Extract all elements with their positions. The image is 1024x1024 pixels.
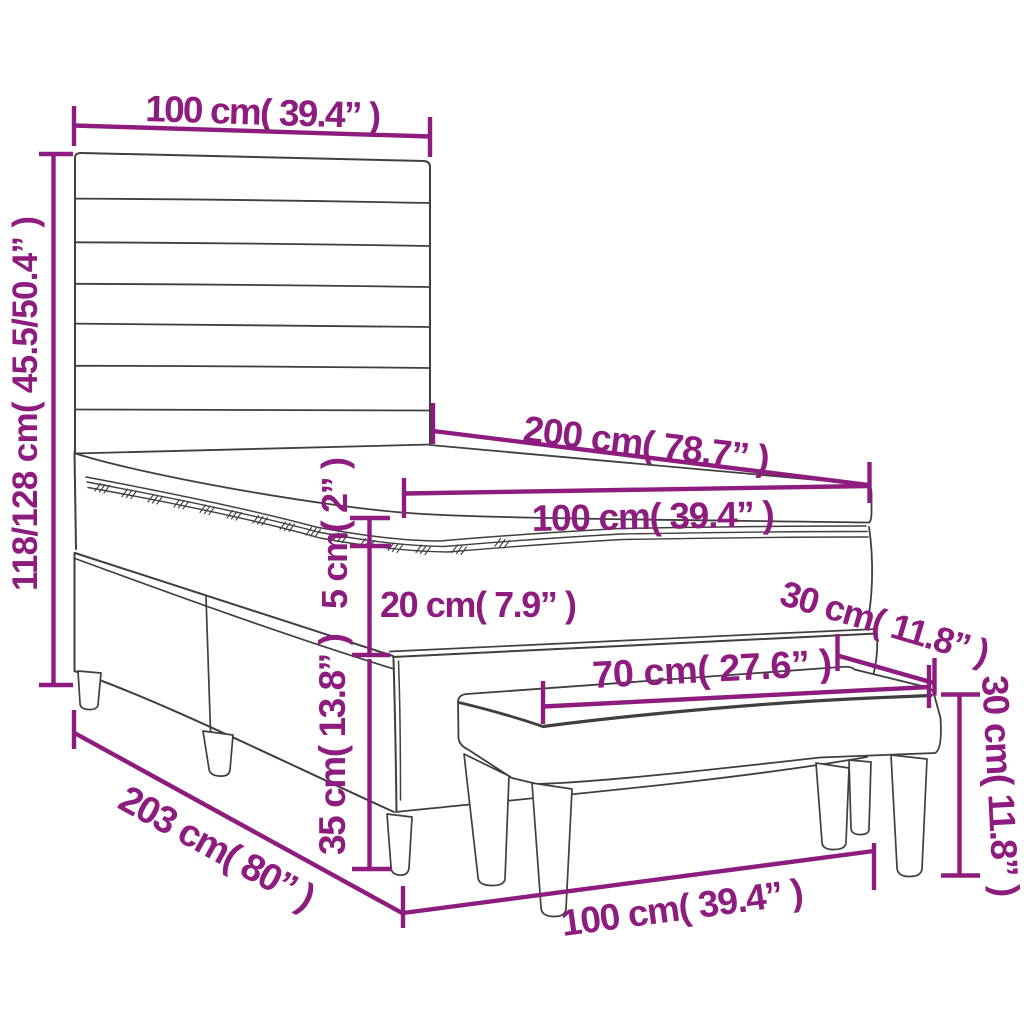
- svg-text:35 cm( 13.8” ): 35 cm( 13.8” ): [312, 633, 353, 855]
- svg-text:20 cm( 7.9” ): 20 cm( 7.9” ): [380, 584, 577, 625]
- svg-text:118/128 cm( 45.5/50.4” ): 118/128 cm( 45.5/50.4” ): [6, 216, 45, 591]
- svg-text:5 cm( 2” ): 5 cm( 2” ): [314, 457, 355, 609]
- svg-text:100 cm( 39.4” ): 100 cm( 39.4” ): [531, 494, 775, 539]
- svg-text:100 cm( 39.4” ): 100 cm( 39.4” ): [145, 88, 382, 136]
